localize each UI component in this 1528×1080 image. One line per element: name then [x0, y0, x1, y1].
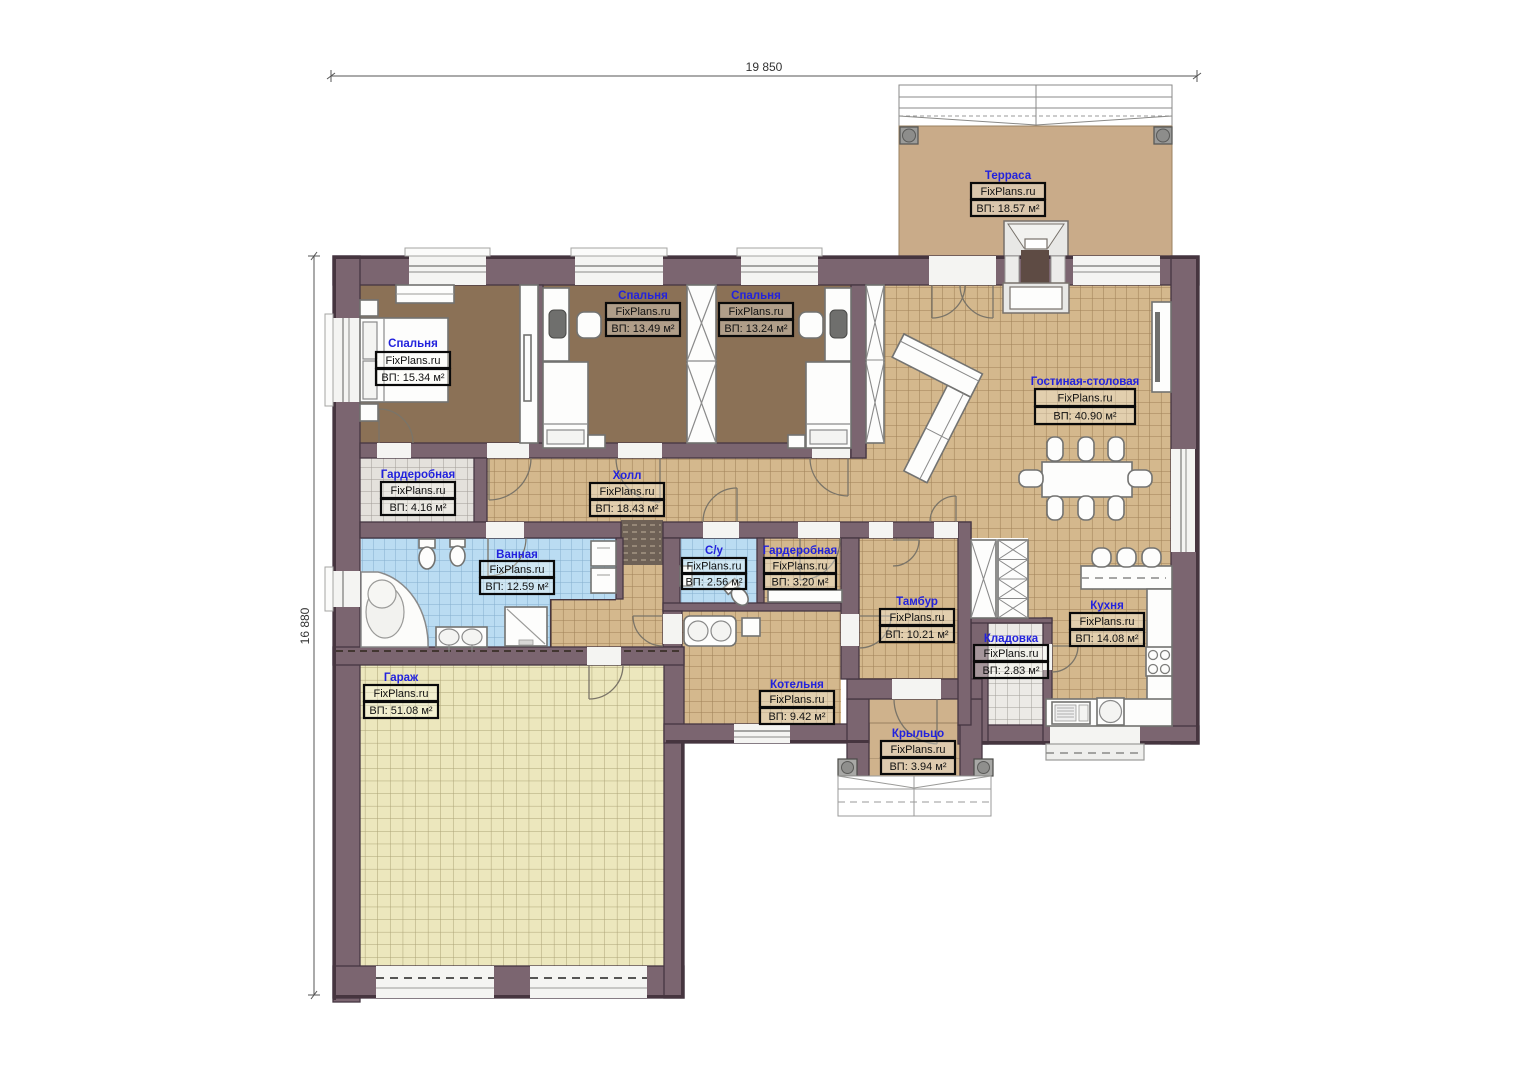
svg-text:FixPlans.ru: FixPlans.ru	[385, 355, 440, 367]
svg-text:FixPlans.ru: FixPlans.ru	[889, 612, 944, 624]
svg-text:Кладовка: Кладовка	[984, 633, 1039, 645]
svg-text:FixPlans.ru: FixPlans.ru	[980, 186, 1035, 198]
svg-text:Гардеробная: Гардеробная	[381, 469, 455, 481]
svg-text:19 850: 19 850	[746, 60, 783, 74]
svg-text:FixPlans.ru: FixPlans.ru	[772, 561, 827, 573]
svg-text:Кухня: Кухня	[1090, 600, 1124, 612]
svg-text:ВП: 12.59 м²: ВП: 12.59 м²	[485, 581, 549, 593]
svg-text:ВП: 3.20 м²: ВП: 3.20 м²	[771, 577, 828, 589]
svg-text:Гардеробная: Гардеробная	[763, 545, 837, 557]
svg-text:Спальня: Спальня	[388, 338, 438, 350]
svg-text:Гостиная-столовая: Гостиная-столовая	[1031, 376, 1140, 388]
svg-text:ВП: 2.83 м²: ВП: 2.83 м²	[982, 665, 1039, 677]
svg-text:Спальня: Спальня	[618, 290, 668, 302]
svg-text:FixPlans.ru: FixPlans.ru	[686, 561, 741, 573]
svg-text:FixPlans.ru: FixPlans.ru	[615, 306, 670, 318]
svg-text:ВП: 18.57 м²: ВП: 18.57 м²	[976, 203, 1040, 215]
svg-text:Тамбур: Тамбур	[896, 596, 938, 608]
svg-text:ВП: 4.16 м²: ВП: 4.16 м²	[389, 502, 446, 514]
svg-text:ВП: 9.42 м²: ВП: 9.42 м²	[768, 711, 825, 723]
svg-text:Холл: Холл	[613, 470, 642, 482]
svg-text:ВП: 51.08 м²: ВП: 51.08 м²	[369, 705, 433, 717]
svg-text:FixPlans.ru: FixPlans.ru	[1079, 616, 1134, 628]
svg-text:ВП: 15.34 м²: ВП: 15.34 м²	[381, 372, 445, 384]
svg-text:ВП: 40.90 м²: ВП: 40.90 м²	[1053, 411, 1117, 423]
svg-text:Ванная: Ванная	[496, 549, 538, 561]
svg-text:Крыльцо: Крыльцо	[892, 728, 944, 740]
svg-text:ВП: 14.08 м²: ВП: 14.08 м²	[1075, 633, 1139, 645]
svg-text:Терраса: Терраса	[985, 170, 1032, 182]
svg-text:ВП: 13.49 м²: ВП: 13.49 м²	[611, 323, 675, 335]
svg-text:FixPlans.ru: FixPlans.ru	[769, 694, 824, 706]
svg-text:FixPlans.ru: FixPlans.ru	[890, 744, 945, 756]
svg-text:Котельня: Котельня	[770, 679, 824, 691]
svg-text:Гараж: Гараж	[384, 672, 419, 684]
svg-text:ВП: 3.94 м²: ВП: 3.94 м²	[889, 761, 946, 773]
svg-text:FixPlans.ru: FixPlans.ru	[390, 485, 445, 497]
svg-text:FixPlans.ru: FixPlans.ru	[373, 688, 428, 700]
svg-text:FixPlans.ru: FixPlans.ru	[489, 564, 544, 576]
svg-text:ВП: 2.56 м²: ВП: 2.56 м²	[685, 577, 742, 589]
svg-text:FixPlans.ru: FixPlans.ru	[599, 486, 654, 498]
svg-text:С/у: С/у	[705, 545, 724, 557]
svg-text:ВП: 10.21 м²: ВП: 10.21 м²	[885, 629, 949, 641]
svg-text:ВП: 13.24 м²: ВП: 13.24 м²	[724, 323, 788, 335]
svg-text:Спальня: Спальня	[731, 290, 781, 302]
svg-text:ВП: 18.43 м²: ВП: 18.43 м²	[595, 503, 659, 515]
svg-text:FixPlans.ru: FixPlans.ru	[983, 648, 1038, 660]
svg-text:FixPlans.ru: FixPlans.ru	[728, 306, 783, 318]
svg-text:FixPlans.ru: FixPlans.ru	[1057, 393, 1112, 405]
svg-text:16 880: 16 880	[298, 607, 312, 644]
